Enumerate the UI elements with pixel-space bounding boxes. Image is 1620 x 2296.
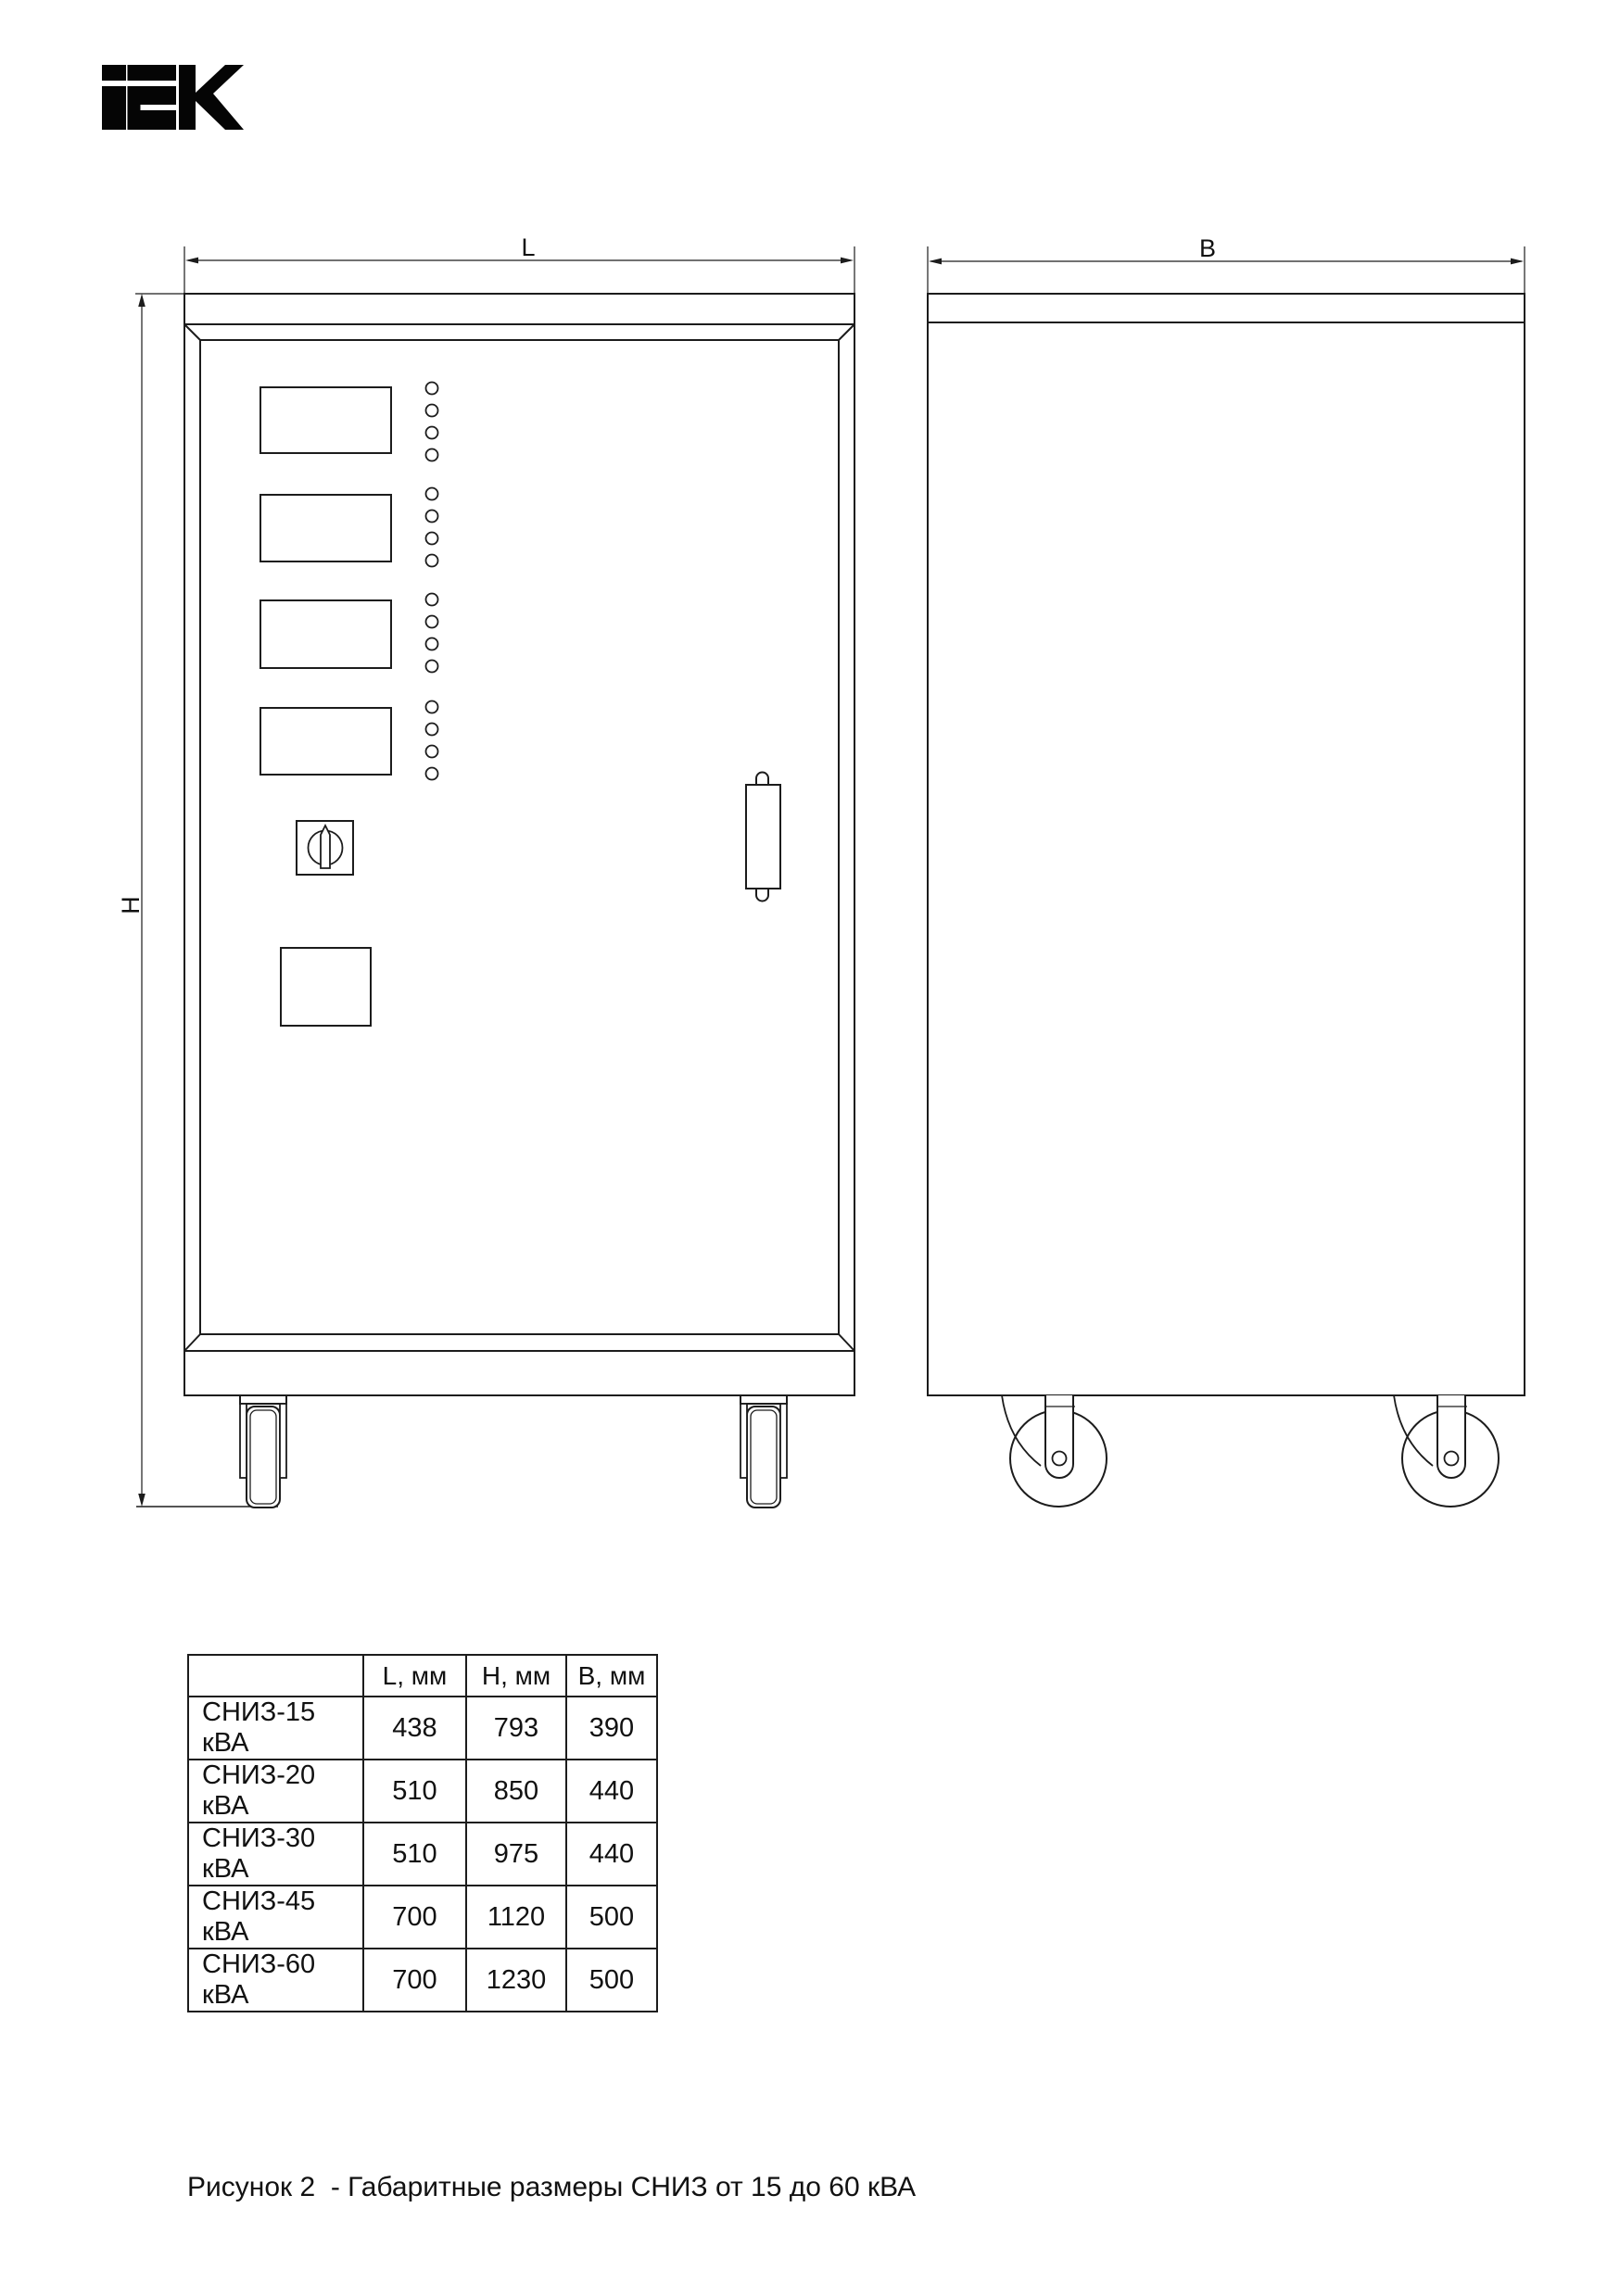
caster-swivel-bracket [1002,1395,1041,1466]
table-row: СНИЗ-20 кВА 510 850 440 [188,1760,657,1823]
caster-wheel [247,1407,280,1508]
caster-wheel [747,1407,780,1508]
dimensions-table: L, мм H, мм B, мм СНИЗ-15 кВА 438 793 39… [187,1654,658,2012]
caster-axle [1445,1452,1459,1466]
h-cell: 1230 [466,1949,566,2012]
dim-l-arrow-left [185,258,198,264]
table-header-l: L, мм [363,1655,466,1697]
figure-caption: Рисунок 2 - Габаритные размеры СНИЗ от 1… [187,2172,916,2203]
side-cabinet-body [928,294,1525,1395]
b-cell: 500 [566,1949,657,2012]
front-view: L H [117,233,854,1508]
table-header-b: B, мм [566,1655,657,1697]
model-cell: СНИЗ-60 кВА [188,1949,363,2012]
caster-fork-right [780,1404,787,1478]
door-handle-body [746,785,780,889]
table-header-h: H, мм [466,1655,566,1697]
l-cell: 438 [363,1697,466,1760]
b-cell: 440 [566,1760,657,1823]
front-caster-right [740,1395,787,1508]
model-cell: СНИЗ-45 кВА [188,1886,363,1949]
h-cell: 793 [466,1697,566,1760]
dim-l-label: L [521,233,535,261]
b-cell: 500 [566,1886,657,1949]
dim-b-label: B [1199,234,1216,262]
model-cell: СНИЗ-20 кВА [188,1760,363,1823]
dimension-l: L [184,233,854,293]
page: L H [0,0,1620,2296]
caster-fork-right [280,1404,286,1478]
side-caster-left [1002,1395,1107,1507]
dim-b-arrow-left [929,259,942,265]
caster-plate [240,1395,286,1404]
table-header-row: L, мм H, мм B, мм [188,1655,657,1697]
dim-l-arrow-right [841,258,854,264]
rotary-switch-knob [321,826,330,868]
l-cell: 700 [363,1886,466,1949]
dim-h-arrow-top [138,294,146,307]
dimension-b: B [928,234,1525,293]
l-cell: 700 [363,1949,466,2012]
model-cell: СНИЗ-30 кВА [188,1823,363,1886]
side-caster-right [1394,1395,1499,1507]
model-cell: СНИЗ-15 кВА [188,1697,363,1760]
dim-h-label: H [117,896,145,915]
side-view: B [928,234,1525,1507]
table-header-model [188,1655,363,1697]
b-cell: 440 [566,1823,657,1886]
dim-b-arrow-right [1511,259,1524,265]
side-outer-body [928,294,1525,1395]
caster-fork-left [240,1404,247,1478]
h-cell: 850 [466,1760,566,1823]
table-row: СНИЗ-45 кВА 700 1120 500 [188,1886,657,1949]
table-row: СНИЗ-15 кВА 438 793 390 [188,1697,657,1760]
caster-swivel-bracket [1394,1395,1433,1466]
front-caster-left [240,1395,286,1508]
table-row: СНИЗ-30 кВА 510 975 440 [188,1823,657,1886]
caster-axle [1053,1452,1067,1466]
h-cell: 1120 [466,1886,566,1949]
dim-h-arrow-bottom [138,1494,146,1507]
b-cell: 390 [566,1697,657,1760]
door-handle [746,773,780,902]
table-row: СНИЗ-60 кВА 700 1230 500 [188,1949,657,2012]
caster-plate [740,1395,787,1404]
l-cell: 510 [363,1760,466,1823]
caster-fork-left [740,1404,747,1478]
h-cell: 975 [466,1823,566,1886]
l-cell: 510 [363,1823,466,1886]
technical-drawing: L H [0,0,1620,1621]
